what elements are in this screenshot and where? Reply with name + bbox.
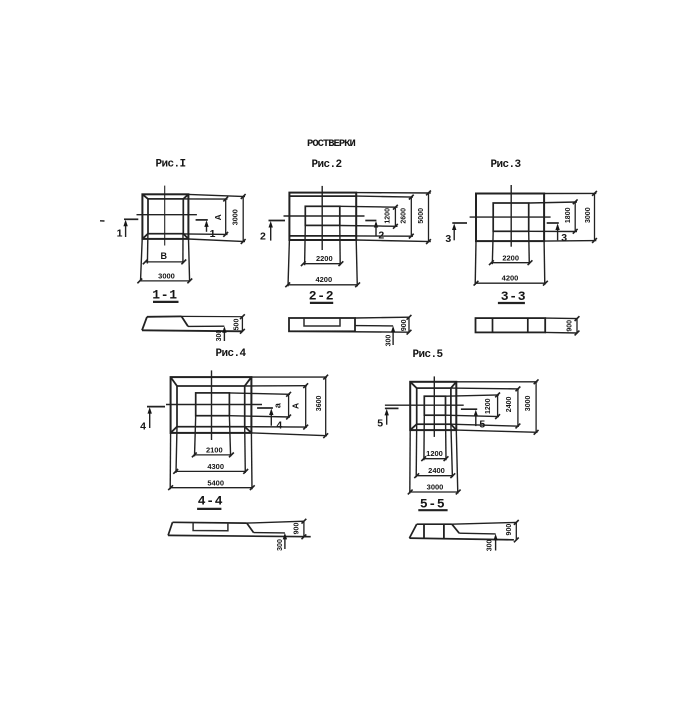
- svg-text:3000: 3000: [230, 209, 239, 225]
- svg-text:2: 2: [260, 231, 266, 243]
- svg-text:Рис.5: Рис.5: [412, 349, 443, 361]
- svg-text:4: 4: [140, 421, 146, 433]
- svg-text:А: А: [291, 403, 301, 409]
- svg-text:2400: 2400: [506, 397, 513, 413]
- svg-text:5: 5: [377, 418, 383, 430]
- svg-text:300: 300: [386, 335, 393, 347]
- svg-text:А: А: [213, 214, 223, 220]
- svg-text:1200: 1200: [426, 449, 443, 458]
- svg-text:5400: 5400: [207, 478, 224, 487]
- svg-text:3-3: 3-3: [501, 289, 527, 304]
- svg-text:900: 900: [294, 523, 301, 535]
- svg-text:3: 3: [445, 233, 451, 245]
- svg-text:2400: 2400: [428, 466, 445, 475]
- svg-text:900: 900: [401, 319, 408, 331]
- svg-text:5000: 5000: [418, 208, 425, 224]
- svg-text:Рис.2: Рис.2: [311, 159, 341, 171]
- svg-text:300: 300: [277, 539, 284, 551]
- svg-text:1-1: 1-1: [152, 287, 178, 302]
- svg-text:РОСТВЕРКИ: РОСТВЕРКИ: [307, 138, 355, 150]
- svg-text:4-4: 4-4: [198, 494, 224, 509]
- svg-text:Рис.3: Рис.3: [490, 159, 521, 171]
- svg-text:4300: 4300: [207, 462, 224, 471]
- svg-text:900: 900: [566, 320, 573, 332]
- svg-text:2-2: 2-2: [309, 289, 335, 304]
- svg-text:3000: 3000: [525, 396, 532, 412]
- svg-text:4200: 4200: [502, 274, 519, 283]
- svg-text:2100: 2100: [206, 445, 223, 454]
- svg-text:500: 500: [234, 319, 241, 331]
- svg-text:Рис.4: Рис.4: [215, 348, 246, 360]
- svg-text:3: 3: [561, 232, 567, 244]
- svg-text:300: 300: [486, 539, 493, 551]
- svg-text:3000: 3000: [427, 482, 444, 491]
- svg-text:2200: 2200: [502, 253, 519, 262]
- svg-text:2200: 2200: [316, 254, 333, 263]
- svg-text:2600: 2600: [401, 208, 408, 224]
- svg-text:3000: 3000: [585, 207, 592, 223]
- svg-text:1200: 1200: [485, 398, 492, 414]
- svg-text:1200: 1200: [384, 208, 391, 224]
- svg-text:3600: 3600: [316, 396, 323, 412]
- svg-text:900: 900: [506, 524, 513, 536]
- svg-text:4: 4: [276, 420, 282, 432]
- svg-text:1: 1: [117, 228, 123, 240]
- svg-text:В: В: [161, 251, 168, 261]
- svg-text:3000: 3000: [158, 271, 175, 280]
- svg-text:4200: 4200: [315, 275, 332, 284]
- svg-text:300: 300: [216, 330, 223, 342]
- svg-text:1800: 1800: [565, 207, 572, 223]
- svg-text:Рис.I: Рис.I: [155, 158, 185, 170]
